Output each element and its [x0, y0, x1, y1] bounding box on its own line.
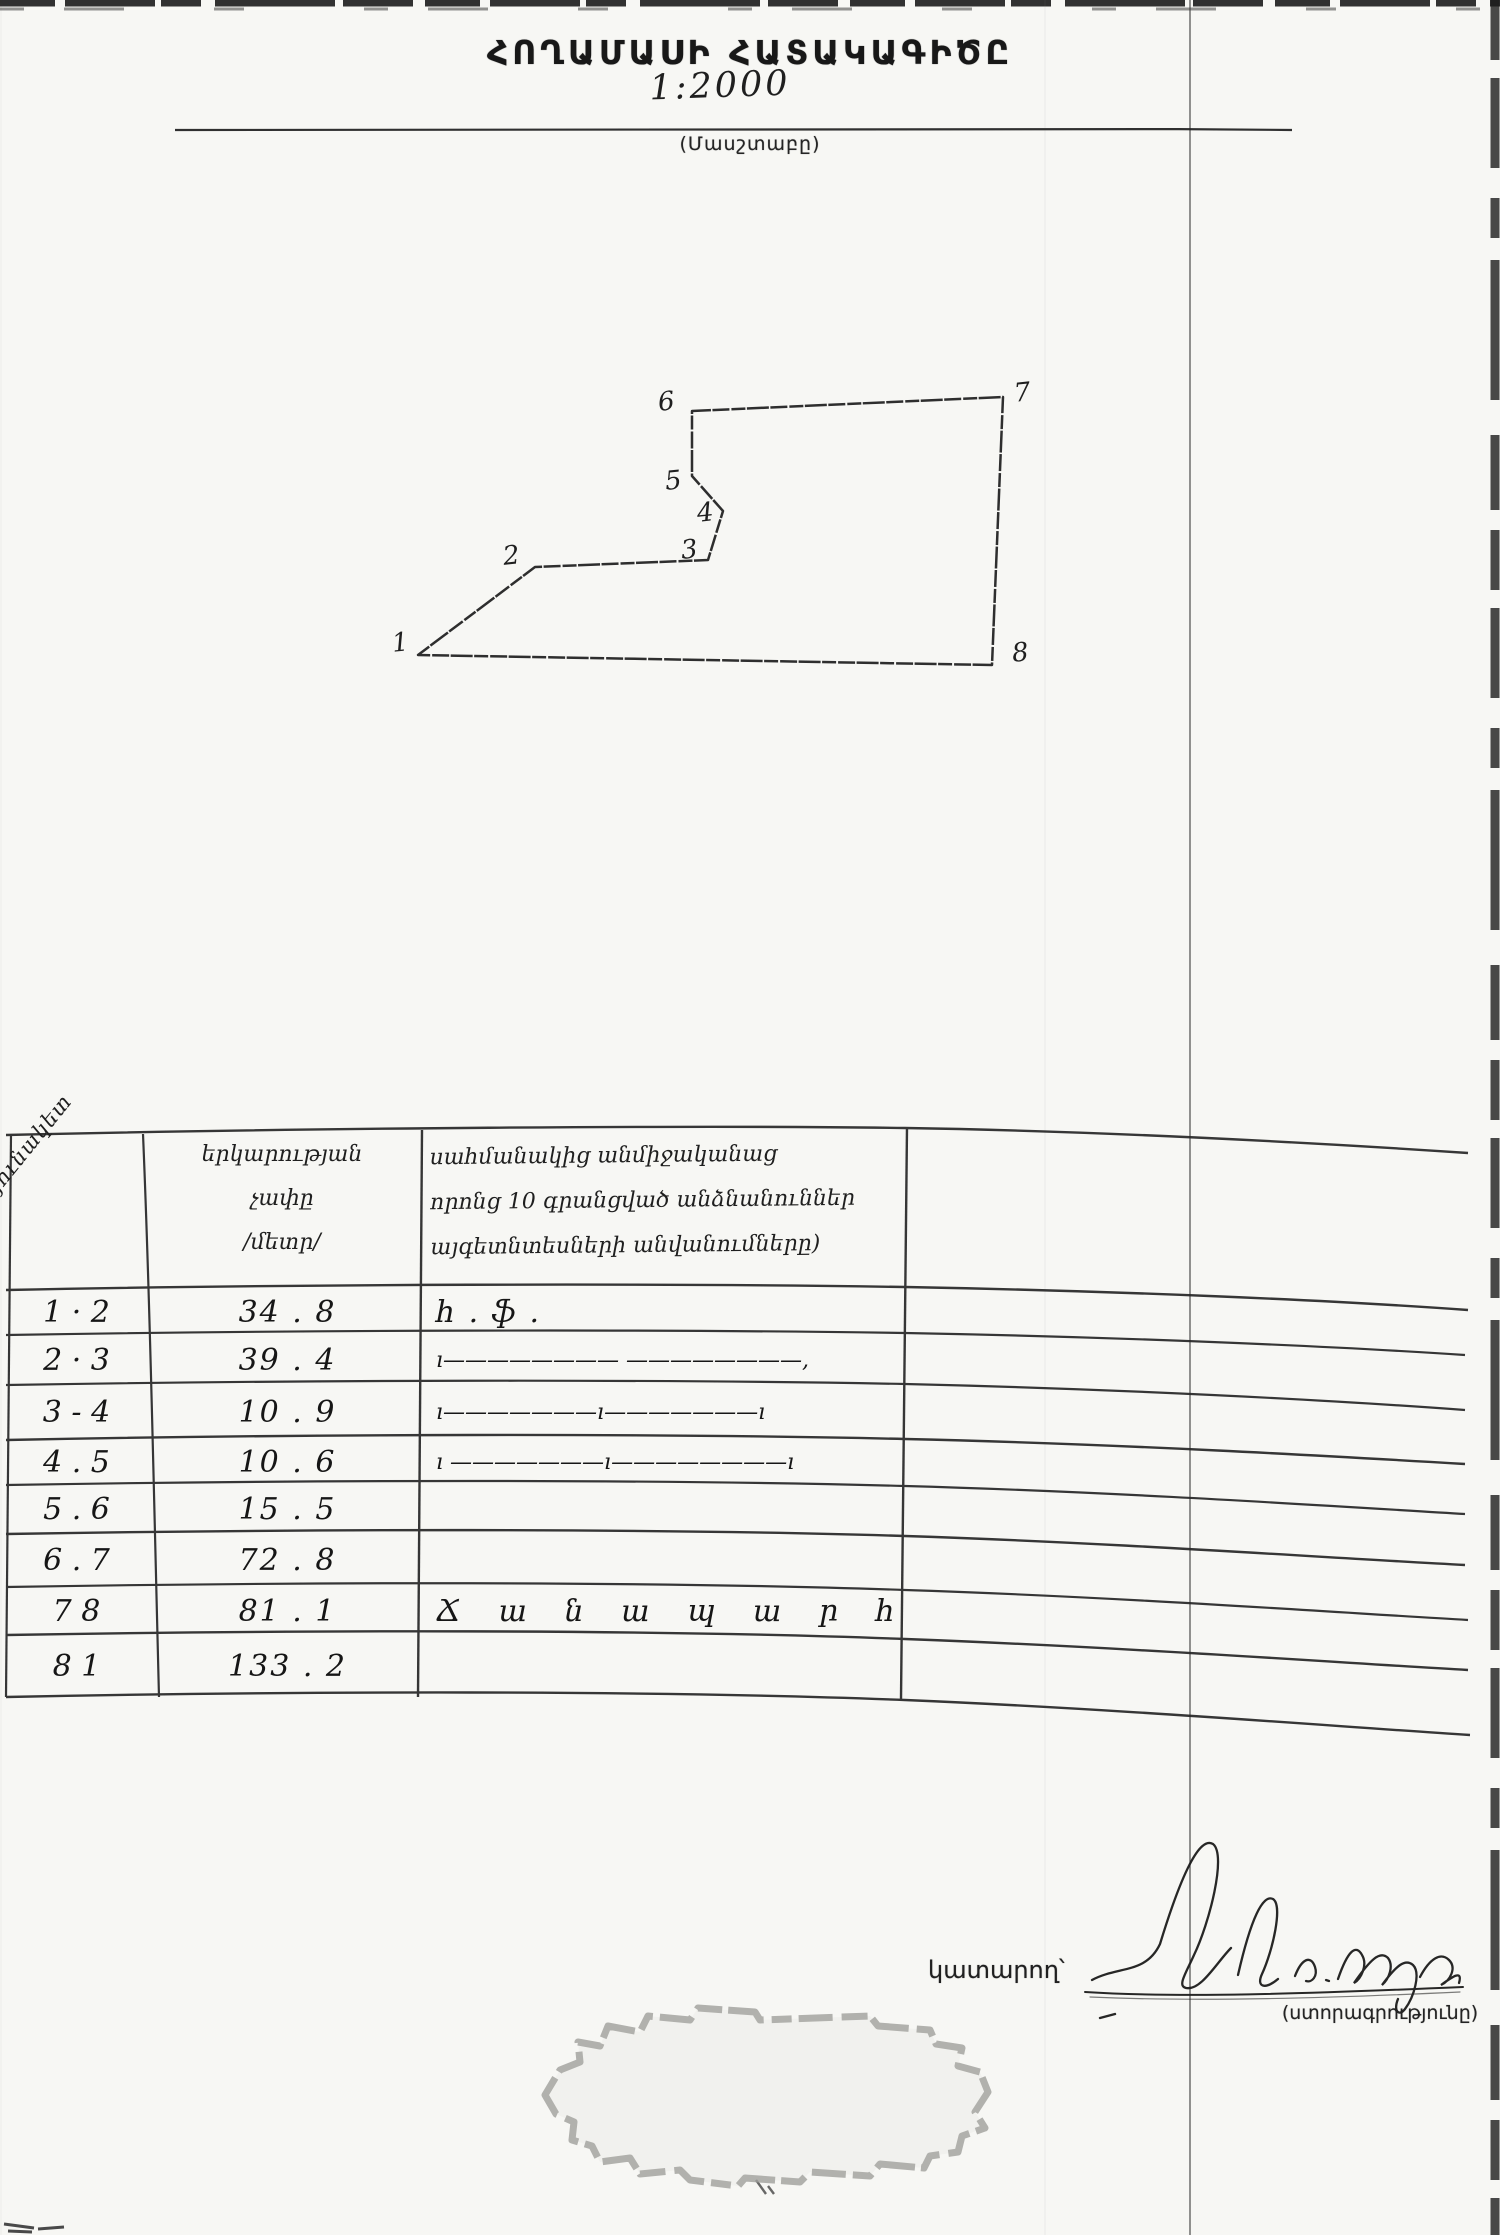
signature	[1085, 1843, 1463, 2018]
vertex-label-7: 7	[1013, 379, 1032, 407]
cell-segment: 8 1	[14, 1635, 139, 1697]
cell-length: 10 . 9	[165, 1385, 410, 1440]
cell-neighbor: Ճ ա ն ա պ ա ր հ	[436, 1587, 906, 1635]
cell-segment: 2 · 3	[14, 1335, 139, 1385]
vertex-label-6: 6	[657, 388, 676, 416]
cell-length: 34 . 8	[165, 1290, 410, 1335]
stamp	[545, 2008, 988, 2186]
cell-segment: 7 8	[14, 1587, 139, 1635]
cell-length: 81 . 1	[165, 1587, 410, 1635]
header-col3-line2: որոնց 10 գրանցված անձնանուններ	[430, 1176, 855, 1225]
plot-boundary-polygon	[418, 397, 1003, 665]
cell-segment: 4 . 5	[14, 1440, 139, 1485]
vertex-label-3: 3	[680, 536, 699, 564]
scan-artifact-top-edge	[0, 3, 1500, 9]
header-col2-line3: /մետր/	[152, 1221, 412, 1265]
cell-length: 133 . 2	[165, 1635, 410, 1697]
header-col2-line1: երկարության	[152, 1133, 412, 1177]
header-col3-line1: սահմանակից անմիջականաց	[429, 1131, 854, 1180]
scale-caption: (Մասշտաբը)	[620, 133, 880, 155]
cell-length: 10 . 6	[165, 1440, 410, 1485]
cell-neighbor	[436, 1534, 906, 1587]
executor-label: կատարող՝	[928, 1956, 1065, 1984]
cell-neighbor: ı———————— ————————,	[436, 1335, 906, 1385]
cell-neighbor	[436, 1485, 906, 1534]
cell-length: 15 . 5	[165, 1485, 410, 1534]
cell-length: 39 . 4	[165, 1335, 410, 1385]
cell-neighbor: ı ———————ı————————ı	[436, 1440, 906, 1485]
vertex-label-1: 1	[391, 629, 410, 657]
cell-segment: 6 . 7	[14, 1534, 139, 1587]
header-col3: սահմանակից անմիջականաց որոնց 10 գրանցված…	[429, 1131, 855, 1270]
cell-neighbor: հ . ֆ .	[436, 1290, 906, 1335]
scale-value: 1:2000	[619, 63, 820, 110]
cell-segment: 5 . 6	[14, 1485, 139, 1534]
vertex-label-8: 8	[1011, 639, 1030, 667]
cell-neighbor	[436, 1635, 906, 1697]
vertex-label-5: 5	[664, 467, 683, 495]
vertex-label-2: 2	[502, 542, 521, 570]
header-col2-line2: չափը	[152, 1177, 412, 1221]
header-col3-line3: այգետնտեսների անվանումները)	[430, 1221, 855, 1270]
scan-drawing-layer	[0, 0, 1500, 2235]
cell-length: 72 . 8	[165, 1534, 410, 1587]
cell-neighbor: ı———————ı———————ı	[436, 1385, 906, 1440]
cell-segment: 1 · 2	[14, 1290, 139, 1335]
scan-artifact-bottom-left	[4, 2180, 774, 2232]
header-col2: երկարության չափը /մետր/	[152, 1133, 412, 1265]
scale-underline	[175, 127, 1292, 130]
scanned-document-page: ՀՈՂԱՄԱՍԻ ՀԱՏԱԿԱԳԻԾԸ 1:2000 (Մասշտաբը) 1 …	[0, 0, 1500, 2235]
signature-caption: (ստորագրությունը)	[1250, 2002, 1500, 2024]
cell-segment: 3 - 4	[14, 1385, 139, 1440]
vertex-label-4: 4	[696, 499, 715, 527]
